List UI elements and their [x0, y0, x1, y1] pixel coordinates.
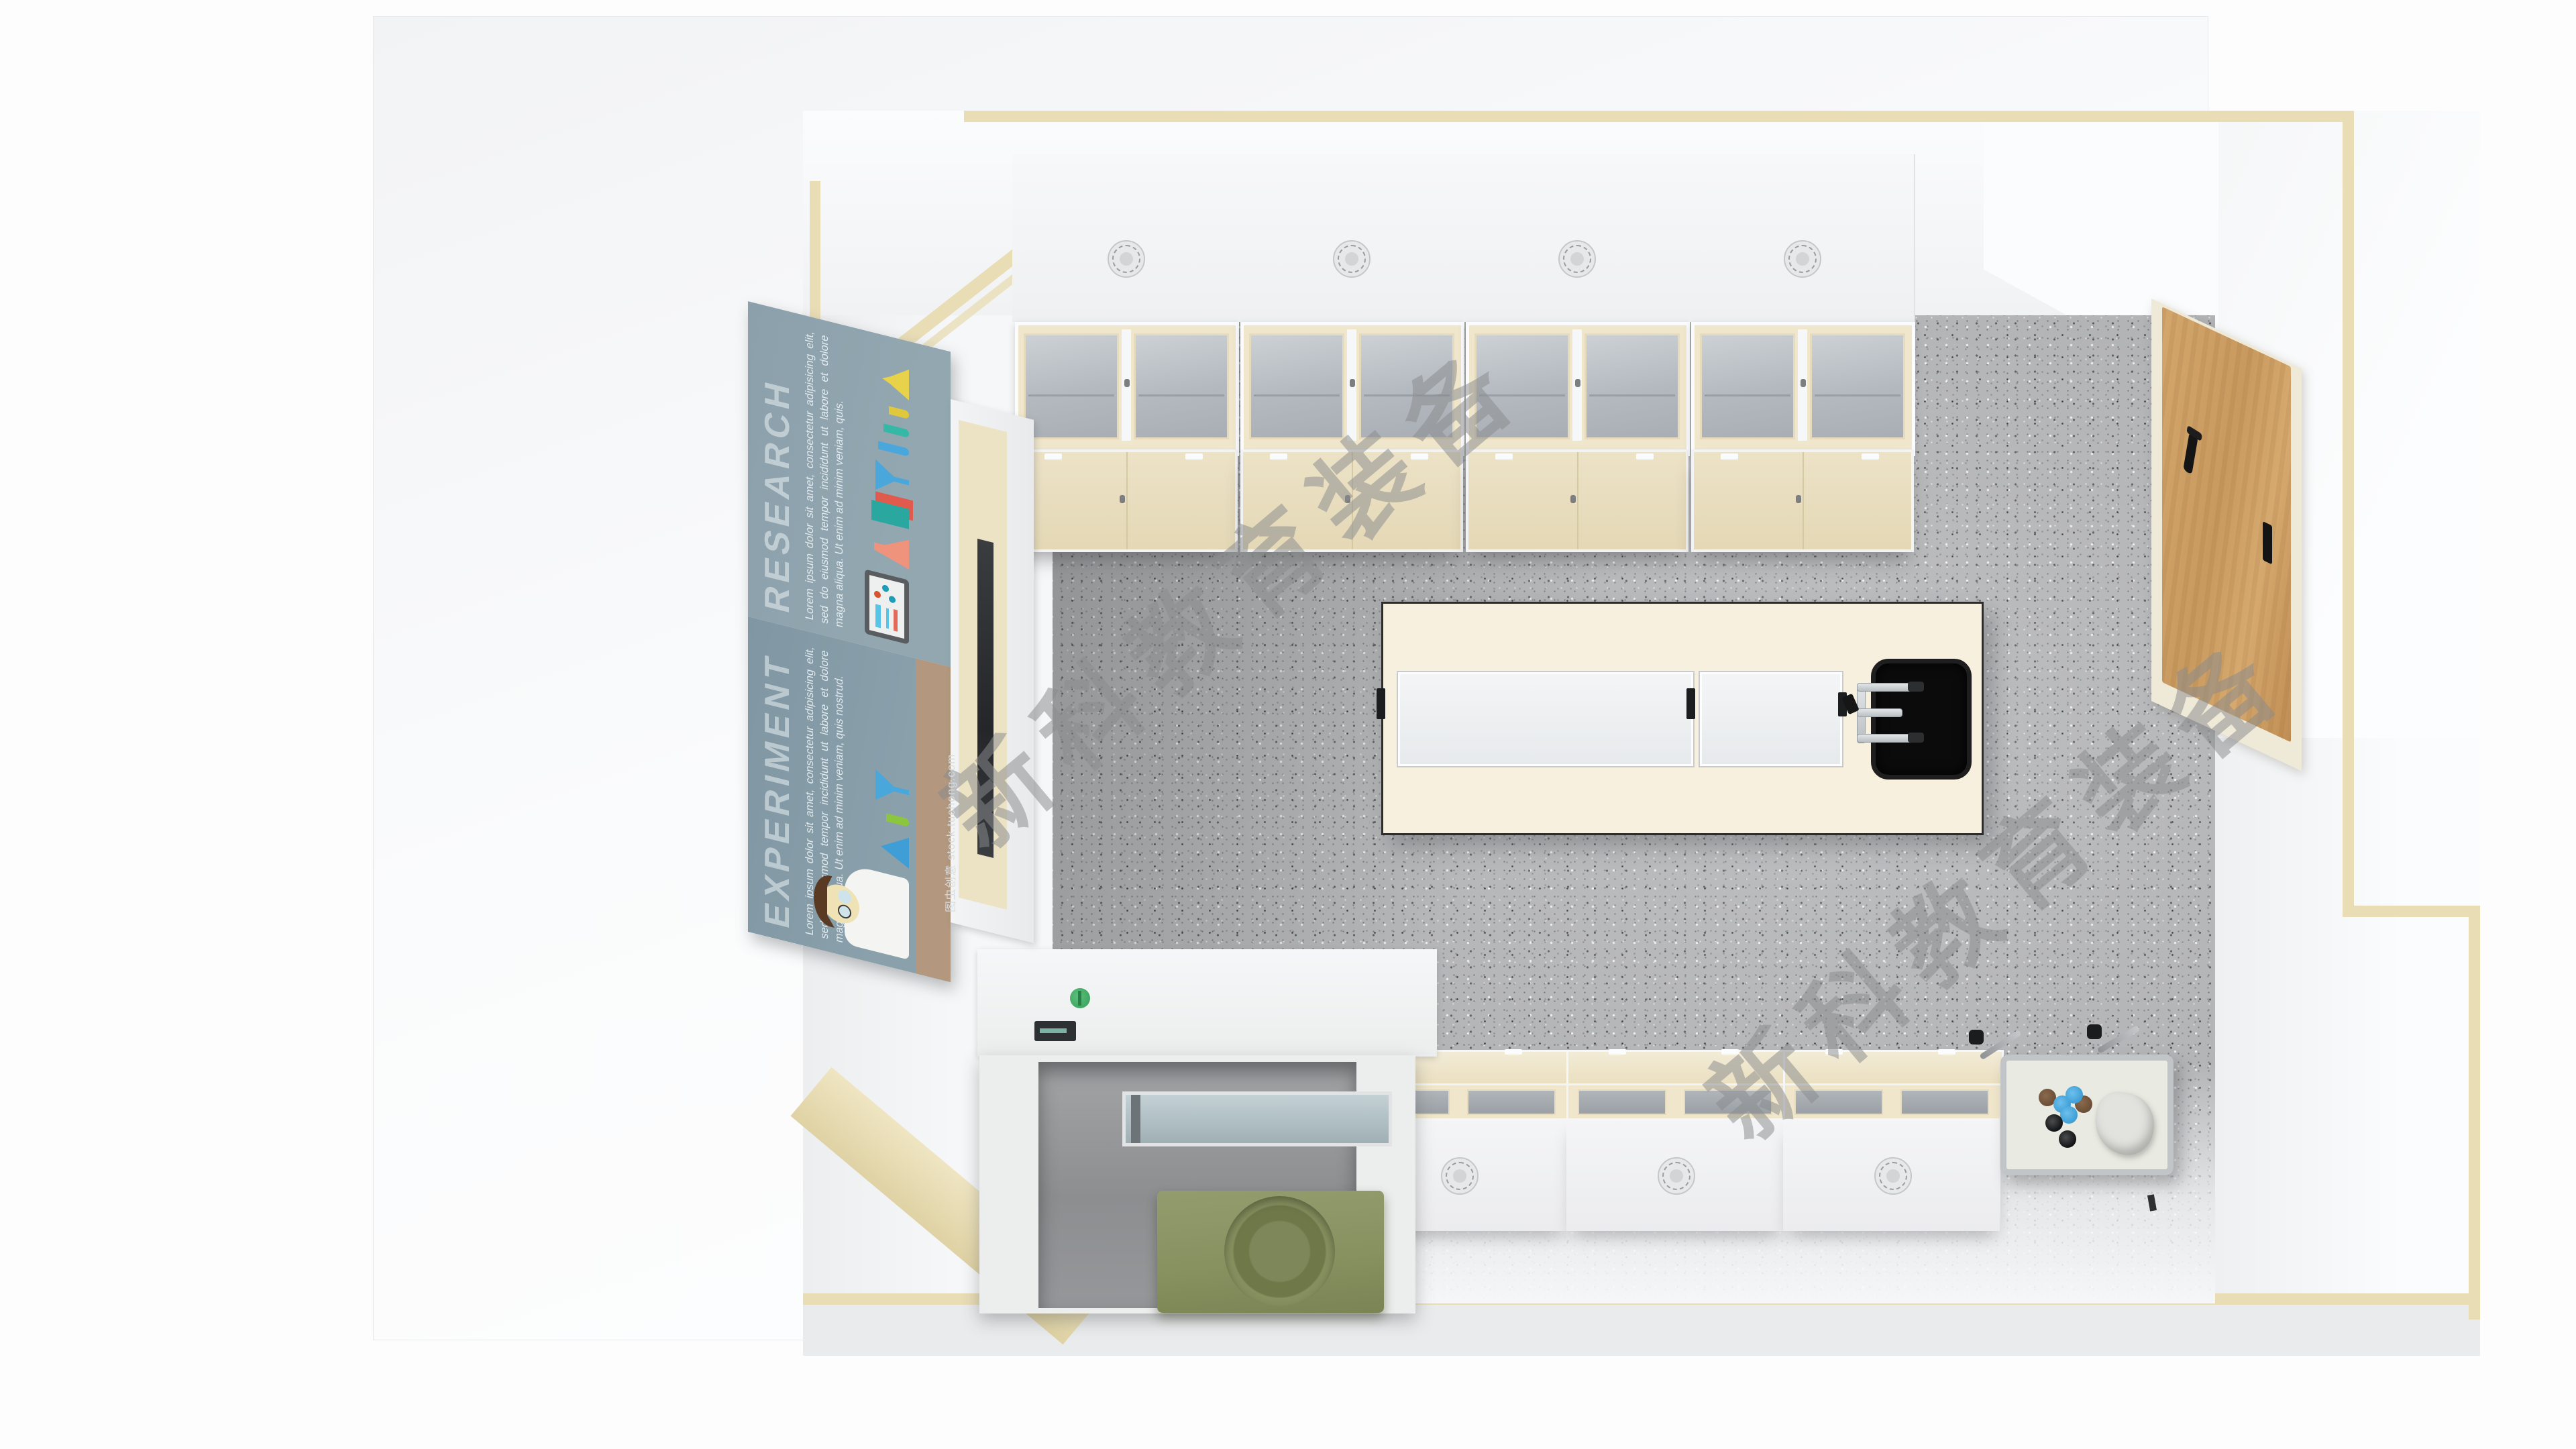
keyhole-icon — [1575, 379, 1580, 387]
wall-edge-jog — [2343, 906, 2480, 917]
demo-cabinet-2 — [1566, 1050, 1783, 1231]
flask-icon — [874, 531, 909, 570]
keyhole-icon — [1124, 379, 1130, 387]
glass-pane — [1684, 1089, 1772, 1115]
glass-pane — [1024, 333, 1119, 439]
burner-flask-icon — [882, 363, 909, 400]
edge-clip — [1377, 688, 1385, 719]
glass-pane — [1585, 333, 1680, 439]
cabinet-front — [1566, 1118, 1784, 1231]
scientist-figure — [845, 863, 909, 960]
cable-grommet-icon — [1784, 240, 1821, 278]
latch-tab — [1825, 1049, 1843, 1055]
poster-research-section: RESEARCH Lorem ipsum dolor sit amet, con… — [748, 301, 951, 667]
cabinet-lower-doors — [1015, 449, 1238, 552]
test-tube-icon — [886, 813, 909, 826]
glass-pane — [1467, 1089, 1556, 1115]
keyhole-icon — [1345, 495, 1350, 503]
blower-duct-ring — [1224, 1196, 1335, 1307]
cabinet-lower-doors — [1691, 449, 1914, 552]
glasses-icon — [838, 903, 851, 920]
faucet-nozzle — [1908, 682, 1924, 692]
hinge — [1862, 453, 1879, 460]
wall-cabinet-2 — [1238, 154, 1463, 547]
glass-pane — [1810, 333, 1905, 439]
faucet-nozzle — [1908, 733, 1924, 743]
lab-sink — [1871, 659, 1972, 780]
keyhole-icon — [1350, 379, 1355, 387]
bottle-blue — [2060, 1106, 2078, 1124]
wooden-door — [2162, 307, 2291, 743]
cable-grommet-icon — [1108, 240, 1145, 278]
cabinet-lid — [1566, 1050, 1787, 1087]
cart-handle-grip — [2087, 1024, 2102, 1039]
books-icon — [871, 500, 909, 529]
hinge — [1270, 453, 1287, 460]
bottle-black — [2045, 1114, 2063, 1132]
cabinet-glass-top — [1566, 1083, 1787, 1122]
keyhole-icon — [1570, 495, 1576, 503]
faucet-arm-bottom — [1857, 734, 1912, 743]
molecule-dot-icon — [882, 584, 889, 592]
funnel-icon — [875, 769, 909, 808]
lab-cart — [2000, 1055, 2173, 1175]
reagent-shelf-left — [1397, 671, 1695, 767]
hinge — [1185, 453, 1203, 460]
science-poster: RESEARCH Lorem ipsum dolor sit amet, con… — [748, 301, 951, 982]
glass-pane — [1700, 333, 1795, 439]
wall-cabinet-1 — [1012, 154, 1238, 547]
funnel-icon — [875, 459, 909, 498]
latch-tab — [1505, 1049, 1522, 1055]
poster-research-icons — [865, 358, 909, 644]
lab-cloth — [2091, 1089, 2158, 1158]
bottle-black — [2059, 1130, 2076, 1148]
cabinet-glass-doors — [1691, 322, 1915, 456]
wall-cabinet-4 — [1688, 154, 1914, 547]
fume-hood — [979, 1055, 1415, 1313]
glass-pane — [1474, 333, 1570, 439]
cable-grommet-icon — [1441, 1157, 1479, 1195]
scientist-face — [822, 880, 859, 927]
cabinet-top — [1012, 154, 1239, 322]
cabinet-top — [1688, 154, 1915, 322]
cable-grommet-icon — [1874, 1157, 1912, 1195]
fume-hood-control-panel — [1034, 1021, 1076, 1041]
glass-pane — [1578, 1089, 1666, 1115]
latch-tab — [1609, 1049, 1626, 1055]
fume-hood-blower — [1157, 1191, 1384, 1313]
fume-hood-valve-knob — [1070, 988, 1090, 1008]
bottle-blue — [2065, 1086, 2083, 1104]
poster-experiment-title: EXPERIMENT — [757, 631, 798, 932]
cabinet-glass-doors — [1015, 322, 1239, 456]
glass-pane — [1900, 1089, 1989, 1115]
glass-pane — [1359, 333, 1454, 439]
poster-research-title: RESEARCH — [757, 315, 798, 616]
keyhole-icon — [1796, 495, 1801, 503]
hinge — [1495, 453, 1513, 460]
edge-clip — [1686, 688, 1695, 719]
cart-handle-grip — [1969, 1030, 1984, 1044]
wall-edge-top — [964, 111, 2353, 122]
cabinet-top — [1238, 154, 1464, 322]
wall-cabinet-3 — [1463, 154, 1688, 547]
wall-edge-right-lower — [2469, 906, 2480, 1320]
latch-tab — [1721, 1049, 1739, 1055]
molecule-dot-icon — [889, 595, 896, 603]
cabinet-front — [1783, 1118, 2001, 1231]
cabinet-top — [1463, 154, 1690, 322]
cable-grommet-icon — [1558, 240, 1596, 278]
cable-grommet-icon — [1333, 240, 1371, 278]
faucet-arm-middle — [1857, 708, 1902, 717]
test-tube-icon — [889, 406, 909, 419]
cabinet-lower-doors — [1466, 449, 1688, 552]
hinge — [1411, 453, 1428, 460]
keyhole-icon — [1801, 379, 1806, 387]
door-lock-plate — [2263, 521, 2272, 565]
render-photo: RESEARCH Lorem ipsum dolor sit amet, con… — [373, 16, 2208, 1340]
poster-experiment-figure — [845, 761, 909, 960]
wall-edge-right-upper — [2343, 111, 2354, 916]
blue-flask-icon — [881, 830, 909, 868]
keyhole-icon — [1120, 495, 1125, 503]
glass-pane — [1134, 333, 1229, 439]
glass-pane — [1249, 333, 1344, 439]
hinge — [1721, 453, 1738, 460]
page: RESEARCH Lorem ipsum dolor sit amet, con… — [0, 0, 2576, 1449]
test-tube-icon — [878, 441, 909, 456]
cable-grommet-icon — [1658, 1157, 1695, 1195]
poster-research-body: Lorem ipsum dolor sit amet, consectetur … — [803, 329, 847, 629]
window-glass-slot — [977, 539, 994, 858]
fume-hood-sash-glass — [1122, 1091, 1392, 1146]
hinge — [1044, 453, 1062, 460]
cabinet-lower-doors — [1240, 449, 1463, 552]
reagent-shelf-right — [1699, 671, 1843, 767]
hinge — [1636, 453, 1654, 460]
cabinet-glass-top — [1783, 1083, 2004, 1122]
cabinet-lid — [1783, 1050, 2004, 1087]
monitor-icon — [865, 569, 909, 644]
door-handle — [2183, 431, 2198, 475]
cabinet-glass-doors — [1240, 322, 1464, 456]
poster-experiment-section: EXPERIMENT Lorem ipsum dolor sit amet, c… — [748, 616, 951, 982]
island-bench — [1381, 602, 1984, 835]
glass-pane — [1794, 1089, 1883, 1115]
molecule-dot-icon — [874, 590, 881, 598]
test-tube-icon — [883, 423, 909, 437]
demo-cabinet-3 — [1783, 1050, 2000, 1231]
latch-tab — [1938, 1049, 1955, 1055]
stock-watermark: 图虫创意 stock.tuchong.com — [941, 754, 958, 912]
faucet-arm-top — [1857, 683, 1912, 692]
fume-hood-chamber — [1038, 1062, 1356, 1308]
observation-window — [951, 399, 1034, 943]
cabinet-glass-doors — [1466, 322, 1690, 456]
